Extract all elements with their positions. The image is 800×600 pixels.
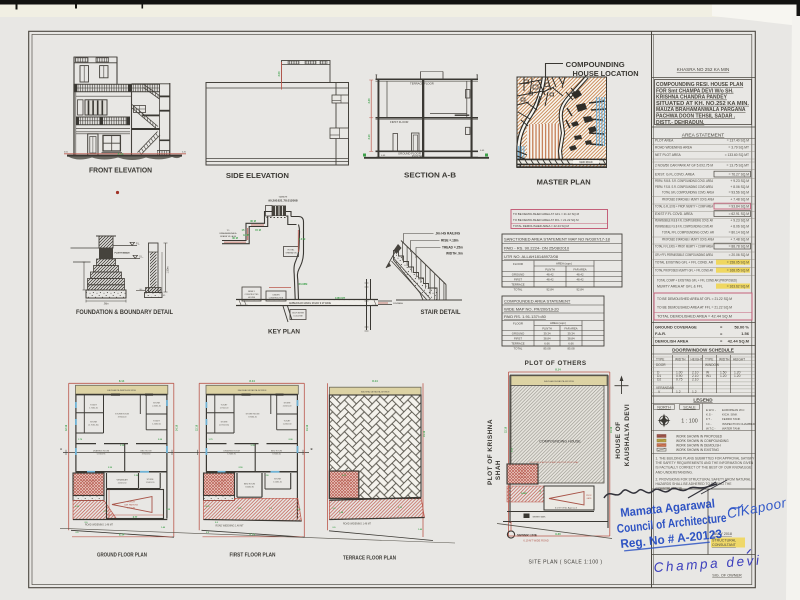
svg-text:3.30: 3.30 bbox=[367, 98, 371, 104]
svg-text:1.75X2.20: 1.75X2.20 bbox=[220, 407, 229, 409]
svg-text:ROAD WIDENING 1.48 MT: ROAD WIDENING 1.48 MT bbox=[215, 524, 244, 527]
svg-text:KAUSHALYA RASTA 4M WIDE: KAUSHALYA RASTA 4M WIDE bbox=[361, 390, 390, 393]
svg-text:WIDTH: WIDTH bbox=[719, 358, 730, 362]
svg-text:FOUNDATION & BOUNDARY DETAIL: FOUNDATION & BOUNDARY DETAIL bbox=[76, 309, 173, 316]
svg-text:1.20X2.00: 1.20X2.00 bbox=[283, 423, 292, 425]
svg-text:1.50X1.20: 1.50X1.20 bbox=[273, 482, 282, 484]
svg-text:THE SAFETY REQUIREMENTS AND TH: THE SAFETY REQUIREMENTS AND THE INFORMAT… bbox=[656, 461, 754, 465]
svg-text:WIDTH: WIDTH bbox=[675, 358, 686, 362]
svg-text:1.20X2.00: 1.20X2.00 bbox=[152, 423, 161, 425]
svg-text:B: B bbox=[311, 447, 313, 451]
svg-text:RISPANA: RISPANA bbox=[393, 302, 403, 305]
svg-text:STORE: STORE bbox=[284, 403, 292, 405]
svg-text:WORK SHOWN IN PROPOSED: WORK SHOWN IN PROPOSED bbox=[676, 434, 723, 438]
svg-text:TOTAL EXISTING GFL + FFL CO: TOTAL EXISTING GFL + FFL COND. AR bbox=[655, 261, 714, 265]
svg-text:1.20: 1.20 bbox=[734, 374, 741, 378]
svg-text:39.34: 39.34 bbox=[568, 332, 575, 336]
svg-text:EXIST F.FL COVD. AREA: EXIST F.FL COVD. AREA bbox=[655, 212, 694, 216]
svg-text:= 137.40 SQ.M: = 137.40 SQ.M bbox=[727, 139, 750, 143]
svg-text:3.95X3.60: 3.95X3.60 bbox=[272, 453, 281, 455]
svg-text:FIRST: FIRST bbox=[514, 337, 522, 341]
svg-text:60.96M: 60.96M bbox=[299, 282, 308, 286]
svg-text:.9m HG RAILING: .9m HG RAILING bbox=[435, 232, 461, 236]
svg-text:G.L.: G.L. bbox=[139, 256, 144, 259]
svg-text:6.0 MT Wide Approach: 6.0 MT Wide Approach bbox=[555, 507, 578, 510]
svg-text:2. PROVISIONS FOR STRUCTURAL S: 2. PROVISIONS FOR STRUCTURAL SAFETY FROM… bbox=[656, 478, 752, 482]
svg-text:3.60X2.80: 3.60X2.80 bbox=[245, 487, 254, 489]
svg-text:PERM. F.S.B. S.R. COMPOUNDING: PERM. F.S.B. S.R. COMPOUNDING COVD AREA bbox=[655, 185, 714, 189]
svg-text:8.14: 8.14 bbox=[249, 533, 255, 537]
svg-text:30 M: 30 M bbox=[250, 219, 256, 223]
svg-text:= 3.79 SQ.MT: = 3.79 SQ.MT bbox=[728, 146, 749, 150]
svg-text:SECTION A-B: SECTION A-B bbox=[404, 171, 456, 180]
svg-text:W.T.C -: W.T.C - bbox=[706, 426, 716, 430]
svg-text:HOTEL: HOTEL bbox=[288, 250, 296, 252]
svg-text:SEWER LINE: SEWER LINE bbox=[517, 534, 537, 538]
svg-text:FOR Smt CHAMPA DEVI W/o SH.: FOR Smt CHAMPA DEVI W/o SH. bbox=[656, 88, 734, 94]
svg-text:FIRST: FIRST bbox=[514, 278, 522, 282]
svg-text:GFL+FFL PERMISSIBLE COMPOUNDIN: GFL+FFL PERMISSIBLE COMPOUNDING AREA bbox=[655, 253, 714, 257]
svg-text:9.0M: 9.0M bbox=[243, 233, 249, 237]
svg-text:WINDOW: WINDOW bbox=[705, 363, 719, 367]
svg-text:P.L.: P.L. bbox=[136, 243, 140, 246]
svg-text:SIDE ELEVATION: SIDE ELEVATION bbox=[226, 171, 289, 180]
svg-text:+ 7.48 SQ.M: + 7.48 SQ.M bbox=[730, 198, 749, 202]
svg-text:2.45X1.50: 2.45X1.50 bbox=[118, 483, 127, 485]
svg-text:COMPOUNDING RESI. HOUSE PLAN: COMPOUNDING RESI. HOUSE PLAN bbox=[656, 82, 744, 88]
svg-text:8.14: 8.14 bbox=[372, 379, 378, 383]
svg-text:PERM. R.B.B. S.R. COMPOUNDING: PERM. R.B.B. S.R. COMPOUNDING COVD. AREA bbox=[655, 179, 714, 183]
svg-text:85.08: 85.08 bbox=[568, 347, 575, 351]
svg-text:= 133.60 SQ.MT: = 133.60 SQ.MT bbox=[725, 153, 749, 157]
svg-text:12.19: 12.19 bbox=[65, 424, 68, 431]
svg-text:A: A bbox=[60, 447, 62, 451]
svg-text:BRAHAMANWALA: BRAHAMANWALA bbox=[220, 232, 238, 235]
svg-text:3.00: 3.00 bbox=[277, 71, 281, 77]
svg-text:39.34: 39.34 bbox=[544, 332, 551, 336]
svg-text:+ 8.06 SQ.M: + 8.06 SQ.M bbox=[730, 225, 749, 229]
svg-text:PERMISSIBLE R.B.B F.FL COMPOUN: PERMISSIBLE R.B.B F.FL COMPOUNDING COVD.… bbox=[655, 219, 713, 223]
svg-text:TO BE DEMOLISHED AREA AT FFL: TO BE DEMOLISHED AREA AT FFL = 21.22 SQ.… bbox=[657, 306, 732, 310]
svg-text:12.19: 12.19 bbox=[505, 426, 508, 433]
svg-text:UNDER: UNDER bbox=[272, 295, 280, 297]
svg-text:SHAH: SHAH bbox=[495, 460, 502, 480]
svg-text:PAID - RS. 90.2224- ON 25/: PAID - RS. 90.2224- ON 25/08/2010 bbox=[504, 246, 570, 251]
svg-text:STORE: STORE bbox=[274, 479, 282, 481]
svg-text:EXIST. G.FL.COVD. AREA: EXIST. G.FL.COVD. AREA bbox=[655, 173, 695, 177]
svg-text:AND UNDERSTANDING.: AND UNDERSTANDING. bbox=[656, 470, 693, 474]
svg-text:PROPOSED STAIRCASE / MUMTY CO: PROPOSED STAIRCASE / MUMTY COVD. AREA bbox=[662, 198, 715, 202]
svg-text:SITUATED AT KH. NO.252 KA MIN: SITUATED AT KH. NO.252 KA MIN. bbox=[656, 101, 750, 107]
svg-text:PLINTH BEAM: PLINTH BEAM bbox=[115, 252, 130, 255]
svg-text:FLOOR: FLOOR bbox=[513, 322, 523, 326]
svg-text:PLOT OF KRISHNA: PLOT OF KRISHNA bbox=[487, 419, 494, 485]
svg-text:TOILET: TOILET bbox=[284, 421, 292, 423]
svg-text:F.T -: F.T - bbox=[706, 417, 712, 421]
svg-text:KIT+W.C+BATH: KIT+W.C+BATH bbox=[81, 480, 96, 483]
svg-text:LEGEND: LEGEND bbox=[693, 398, 713, 403]
svg-text:AMBEDKAR MARG ROAD 9 M WIDE: AMBEDKAR MARG ROAD 9 M WIDE bbox=[289, 302, 332, 305]
svg-text:1.75X2.20: 1.75X2.20 bbox=[89, 407, 98, 409]
svg-text:ROAD WIDENING 1.48 MT: ROAD WIDENING 1.48 MT bbox=[343, 523, 372, 526]
svg-text:TOTAL COMP + EXISTING GFL + F: TOTAL COMP + EXISTING GFL + FFL COND AR … bbox=[657, 279, 737, 283]
svg-text:KICH. SINK: KICH. SINK bbox=[722, 413, 737, 417]
svg-text:COLLEGE: COLLEGE bbox=[293, 316, 303, 318]
svg-text:BED ROOM: BED ROOM bbox=[271, 451, 282, 453]
svg-text:AREA STATEMENT: AREA STATEMENT bbox=[682, 133, 725, 139]
svg-text:1.90X2.20: 1.90X2.20 bbox=[84, 484, 94, 486]
svg-text:IS FACTUALLY CORRECT OT THE B: IS FACTUALLY CORRECT OT THE BEST OF OUR … bbox=[656, 466, 753, 470]
svg-text:DISTT.- DEHRADUN.: DISTT.- DEHRADUN. bbox=[656, 120, 705, 126]
svg-text:TYPE: TYPE bbox=[656, 358, 664, 362]
svg-text:8.14: 8.14 bbox=[249, 379, 255, 383]
svg-text:SHERATON: SHERATON bbox=[286, 252, 297, 255]
svg-text:WORK SHOWN IN EXISTING: WORK SHOWN IN EXISTING bbox=[676, 448, 719, 452]
svg-text:3.10: 3.10 bbox=[367, 134, 371, 140]
svg-text:TERRACE: TERRACE bbox=[511, 342, 524, 346]
svg-text:GATE: GATE bbox=[586, 497, 592, 500]
svg-text:TERRACE: TERRACE bbox=[511, 283, 524, 287]
svg-text:6.66: 6.66 bbox=[544, 342, 550, 346]
svg-text:TREAD =.25m: TREAD =.25m bbox=[442, 246, 463, 250]
svg-text:PLOT OF OTHERS: PLOT OF OTHERS bbox=[525, 360, 587, 367]
svg-text:EUROPEAN W.C: EUROPEAN W.C bbox=[722, 408, 745, 412]
svg-text:38.84: 38.84 bbox=[568, 337, 575, 341]
svg-text:FIRST FLOOR PLAN: FIRST FLOOR PLAN bbox=[230, 553, 276, 559]
svg-text:MUMTY/STAIR: MUMTY/STAIR bbox=[337, 480, 352, 483]
svg-text:KAUSHALYA RASTA 4M WIDE: KAUSHALYA RASTA 4M WIDE bbox=[107, 389, 136, 392]
svg-text:PROPOSED STAIRCASE / MUMTY CO: PROPOSED STAIRCASE / MUMTY COVD. AREA bbox=[662, 238, 715, 242]
svg-text:GROUND: GROUND bbox=[512, 273, 524, 277]
svg-text:1.90X2.20: 1.90X2.20 bbox=[214, 484, 224, 486]
svg-text:TERRACE FLOOR PLAN: TERRACE FLOOR PLAN bbox=[343, 556, 396, 562]
svg-text:UTR NO. ALLAH18148972/08: UTR NO. ALLAH18148972/08 bbox=[504, 254, 559, 259]
svg-text:1.2: 1.2 bbox=[692, 390, 697, 394]
svg-text:48.42: 48.42 bbox=[547, 273, 554, 277]
svg-text:COMPOUNDING: COMPOUNDING bbox=[566, 62, 626, 69]
svg-text:TOTAL: TOTAL bbox=[514, 347, 523, 351]
svg-text:4.8 SQM: 4.8 SQM bbox=[127, 508, 135, 510]
svg-text:COMPOUNDING HOUSE: COMPOUNDING HOUSE bbox=[539, 440, 581, 444]
svg-text:VERANDAH: VERANDAH bbox=[116, 479, 128, 482]
svg-text:+BATH: +BATH bbox=[519, 472, 526, 475]
svg-text:PLOT AREA: PLOT AREA bbox=[655, 139, 674, 143]
svg-text:TOTAL DEMOLISHED AREA =: TOTAL DEMOLISHED AREA = 42.44 SQ.M bbox=[657, 315, 732, 319]
svg-text:HOUSE OF: HOUSE OF bbox=[615, 421, 622, 458]
svg-text:FAR AREA: FAR AREA bbox=[564, 327, 577, 331]
svg-text:48.42: 48.42 bbox=[577, 278, 584, 282]
svg-text:1.20: 1.20 bbox=[720, 374, 727, 378]
svg-text:SIG. OF OWNER: SIG. OF OWNER bbox=[712, 574, 742, 578]
svg-text:+ 9.23 SQ.M: + 9.23 SQ.M bbox=[730, 219, 749, 223]
svg-text:9.0 M: 9.0 M bbox=[299, 237, 306, 241]
svg-text:MASTER PLAN: MASTER PLAN bbox=[537, 178, 591, 187]
svg-text:TOTAL DEMOLISHED AREA =: TOTAL DEMOLISHED AREA = 42.44 SQ.M bbox=[513, 224, 570, 228]
svg-text:= 163.62 SQ.M: = 163.62 SQ.M bbox=[727, 285, 750, 289]
svg-text:STORE: STORE bbox=[221, 422, 229, 424]
svg-text:FERRO TANK: FERRO TANK bbox=[722, 417, 740, 421]
svg-text:TYPE: TYPE bbox=[705, 358, 713, 362]
svg-text:TO BE DEMOLISHED AREA AT GFL: TO BE DEMOLISHED AREA AT GFL = 21.22 SQ.… bbox=[657, 297, 732, 301]
svg-text:DOOR/WINDOW SCHEDULE: DOOR/WINDOW SCHEDULE bbox=[672, 348, 734, 353]
svg-text:PAID RS. 1.91.137/=80: PAID RS. 1.91.137/=80 bbox=[504, 314, 547, 319]
svg-text:KHASRA NO 252 KA MIN: KHASRA NO 252 KA MIN bbox=[677, 67, 730, 72]
svg-text:HOUSE LOCATION: HOUSE LOCATION bbox=[573, 71, 639, 78]
svg-text:WIDE MAP NO. PR/200/19-20: WIDE MAP NO. PR/200/19-20 bbox=[504, 307, 560, 312]
svg-text:HEIGHT: HEIGHT bbox=[691, 358, 703, 362]
svg-text:WIDTH .9m: WIDTH .9m bbox=[446, 252, 463, 256]
svg-text:TOILET: TOILET bbox=[153, 421, 161, 423]
svg-text:1.90X2.20: 1.90X2.20 bbox=[517, 477, 527, 479]
svg-text:= 93.56 SQ.M: = 93.56 SQ.M bbox=[729, 191, 750, 195]
svg-text:TO BE DEMOLISHED AREA AT FFL: TO BE DEMOLISHED AREA AT FFL = 21.22 SQ.… bbox=[513, 218, 579, 222]
svg-text:+ 8.06 SQ.M: + 8.06 SQ.M bbox=[730, 185, 749, 189]
svg-text:FAR AREA: FAR AREA bbox=[573, 267, 586, 271]
svg-text:HOUSE: HOUSE bbox=[248, 297, 256, 299]
svg-text:BED ROOM: BED ROOM bbox=[244, 484, 255, 486]
svg-text:INSPECTION CHAMBER: INSPECTION CHAMBER bbox=[722, 422, 755, 426]
svg-text:48.42: 48.42 bbox=[577, 273, 584, 277]
svg-text:FLOOR: FLOOR bbox=[513, 262, 523, 266]
svg-text:2 NOS/50 CAR PARK AT GF 5.0X2: 2 NOS/50 CAR PARK AT GF 5.0X2.75 M bbox=[655, 164, 713, 168]
svg-text:0.75: 0.75 bbox=[676, 378, 683, 382]
svg-text:KEY PLAN: KEY PLAN bbox=[268, 329, 300, 336]
svg-text:NET PLOT AREA: NET PLOT AREA bbox=[655, 153, 682, 157]
svg-text:92.84: 92.84 bbox=[547, 288, 554, 292]
svg-text:1.50m: 1.50m bbox=[167, 267, 170, 274]
svg-text:TERRACE FLOOR: TERRACE FLOOR bbox=[410, 82, 434, 86]
svg-text:(1.75X2.45): (1.75X2.45) bbox=[89, 424, 99, 426]
svg-text:6.19 MT WIDE ROAD: 6.19 MT WIDE ROAD bbox=[523, 539, 548, 543]
svg-text:DRAWING ROOM: DRAWING ROOM bbox=[223, 450, 240, 453]
svg-text:14.19: 14.19 bbox=[176, 424, 179, 431]
svg-text:D2: D2 bbox=[657, 378, 661, 382]
svg-text:GROUND FLOOR PLAN: GROUND FLOOR PLAN bbox=[97, 553, 147, 559]
svg-text:3.35X2.20: 3.35X2.20 bbox=[339, 484, 349, 486]
svg-text:SANCTIONED AREA STATEMENT MAP: SANCTIONED AREA STATEMENT MAP NO N/0307/… bbox=[504, 237, 611, 242]
svg-text:ROAD WIDENING 1.48 MT: ROAD WIDENING 1.48 MT bbox=[85, 523, 114, 526]
svg-text:SITE PLAN ( SCALE 1:100 ): SITE PLAN ( SCALE 1:100 ) bbox=[529, 560, 603, 566]
svg-text:5.70X3.95: 5.70X3.95 bbox=[97, 453, 106, 455]
svg-text:1.50X1.20: 1.50X1.20 bbox=[146, 482, 155, 484]
svg-text:.90m: .90m bbox=[103, 303, 108, 306]
svg-text:8.14: 8.14 bbox=[555, 368, 561, 372]
svg-text:MAUZA BRAHAMANWALA PARGANA: MAUZA BRAHAMANWALA PARGANA bbox=[656, 107, 746, 113]
svg-text:K.S -: K.S - bbox=[706, 413, 712, 417]
svg-text:2.10: 2.10 bbox=[692, 378, 699, 382]
svg-text:= 20.06 SQ.M: = 20.06 SQ.M bbox=[729, 253, 750, 257]
svg-text:WORK SHOWN IN DEMOLISH: WORK SHOWN IN DEMOLISH bbox=[676, 443, 721, 447]
svg-text:DRAWING ROOM: DRAWING ROOM bbox=[93, 450, 110, 453]
svg-text:ROAD WIDENING AREA: ROAD WIDENING AREA bbox=[655, 146, 693, 150]
svg-text:15 M: 15 M bbox=[255, 228, 261, 232]
svg-text:= 76.27 SQ.M: = 76.27 SQ.M bbox=[729, 173, 750, 177]
svg-text:STORE ROOM: STORE ROOM bbox=[115, 414, 129, 416]
svg-text:MUMTY AREA AT GFL & FFL: MUMTY AREA AT GFL & FFL bbox=[657, 285, 703, 289]
svg-text:TOTAL F.FL.EXIS + PROP. MUMTY: TOTAL F.FL.EXIS + PROP. MUMTY + COMP ARE… bbox=[655, 245, 714, 249]
svg-text:TOTAL: TOTAL bbox=[514, 288, 523, 292]
svg-text:BED ROOM: BED ROOM bbox=[141, 451, 152, 453]
svg-text:COMPOUNDED AREA STATEMENT: COMPOUNDED AREA STATEMENT bbox=[504, 299, 571, 304]
svg-text:KIT+W.C: KIT+W.C bbox=[518, 470, 527, 472]
svg-text:3.95X4.20: 3.95X4.20 bbox=[118, 416, 127, 418]
svg-text:DOOR: DOOR bbox=[656, 363, 666, 367]
svg-text:38.84: 38.84 bbox=[544, 337, 551, 341]
svg-text:14.19: 14.19 bbox=[423, 430, 426, 437]
svg-text:AREA (sqm): AREA (sqm) bbox=[556, 262, 572, 266]
svg-text:8.14: 8.14 bbox=[119, 533, 125, 537]
svg-text:STAIR DETAIL: STAIR DETAIL bbox=[421, 309, 461, 316]
svg-text:TOTAL FFL COMPOUNDING COVD. AR: TOTAL FFL COMPOUNDING COVD. AR bbox=[662, 231, 715, 235]
svg-text:CAR PARKING: CAR PARKING bbox=[124, 504, 139, 507]
svg-text:3.95X4.20: 3.95X4.20 bbox=[248, 416, 257, 418]
svg-text:42.44 SQ.M: 42.44 SQ.M bbox=[728, 339, 750, 344]
svg-text:KAUSHALYA DEVI: KAUSHALYA DEVI bbox=[624, 404, 631, 466]
svg-text:STORE: STORE bbox=[90, 422, 98, 424]
svg-text:PORCH: PORCH bbox=[127, 502, 135, 504]
svg-text:TOTAL GFL COMPOUNDING COVD. AR: TOTAL GFL COMPOUNDING COVD. AREA bbox=[662, 191, 715, 195]
svg-text:TOTAL G.FL.EXIS + PROP. MUMTY: TOTAL G.FL.EXIS + PROP. MUMTY + COMP ARE… bbox=[655, 205, 714, 209]
svg-text:= 158.05 SQ.M: = 158.05 SQ.M bbox=[727, 261, 750, 265]
svg-text:CONSTRUCTED: CONSTRUCTED bbox=[245, 294, 259, 296]
svg-text:STORE ROOM: STORE ROOM bbox=[246, 414, 260, 416]
svg-text:KAUSHALYA RASTA 4M WIDE: KAUSHALYA RASTA 4M WIDE bbox=[238, 389, 267, 392]
svg-text:14.19: 14.19 bbox=[610, 426, 613, 433]
svg-text:HAZARDS SHALL BE ADHERED TO DU: HAZARDS SHALL BE ADHERED TO DURING THE bbox=[656, 482, 733, 486]
svg-text:1.2: 1.2 bbox=[676, 390, 681, 394]
svg-text:KRISHNA CHANDRA PANDEY: KRISHNA CHANDRA PANDEY bbox=[656, 95, 728, 101]
svg-text:90.291621.78.012008: 90.291621.78.012008 bbox=[268, 199, 298, 203]
svg-text:58.00 %: 58.00 % bbox=[734, 325, 749, 330]
svg-text:= 13.75 SQ.MT: = 13.75 SQ.MT bbox=[727, 164, 749, 168]
svg-text:WATER TANK: WATER TANK bbox=[722, 426, 740, 430]
svg-text:STORE: STORE bbox=[153, 403, 161, 405]
svg-text:6.77: 6.77 bbox=[133, 517, 138, 519]
svg-text:AREA (sqm): AREA (sqm) bbox=[550, 321, 566, 325]
svg-text:= 62.91 SQ.M: = 62.91 SQ.M bbox=[729, 212, 750, 216]
svg-text:GRAME VILLAGE: GRAME VILLAGE bbox=[220, 235, 237, 238]
svg-text:+ 9.23 SQ.M: + 9.23 SQ.M bbox=[730, 179, 749, 183]
svg-text:FRONT ELEVATION: FRONT ELEVATION bbox=[89, 166, 152, 175]
svg-text:85.08: 85.08 bbox=[544, 347, 551, 351]
svg-text:KAUSHALYA RASTA 4M WIDE: KAUSHALYA RASTA 4M WIDE bbox=[544, 380, 575, 383]
svg-text:F.A.R.: F.A.R. bbox=[655, 331, 666, 336]
svg-text:PACHWA DOON TEHSIL SADAR .: PACHWA DOON TEHSIL SADAR . bbox=[656, 114, 736, 120]
svg-text:CONSULTANT: CONSULTANT bbox=[712, 543, 737, 547]
svg-text:HEIGHT: HEIGHT bbox=[733, 358, 745, 362]
svg-text:14.19: 14.19 bbox=[306, 424, 309, 431]
svg-text:PLINTH: PLINTH bbox=[545, 267, 555, 271]
svg-text:+ 7.48 SQ.M: + 7.48 SQ.M bbox=[730, 238, 749, 242]
svg-text:SEWER TANK: SEWER TANK bbox=[532, 516, 546, 519]
svg-text:1.56: 1.56 bbox=[741, 331, 750, 336]
svg-text:GROUND COVERAGE: GROUND COVERAGE bbox=[655, 325, 697, 330]
svg-text:6.66: 6.66 bbox=[568, 342, 574, 346]
svg-text:TO: TO bbox=[227, 230, 230, 232]
svg-text:KIT+W.C+BATH: KIT+W.C+BATH bbox=[212, 480, 227, 483]
svg-text:FIRST FLOOR: FIRST FLOOR bbox=[390, 120, 408, 124]
svg-text:= 80.14 SQ.M: = 80.14 SQ.M bbox=[729, 231, 750, 235]
svg-text:(1.75X2.45): (1.75X2.45) bbox=[219, 424, 229, 426]
svg-text:2.45X1.20: 2.45X1.20 bbox=[152, 405, 161, 407]
svg-text:RISE =.18m: RISE =.18m bbox=[441, 239, 459, 243]
svg-text:= 88.78 SQ.M: = 88.78 SQ.M bbox=[729, 245, 750, 249]
svg-text:CONSTRUCTION: CONSTRUCTION bbox=[269, 298, 284, 300]
svg-text:PERMISSIBLE F.S.B F.FL COMPOUN: PERMISSIBLE F.S.B F.FL COMPOUNDING COVD … bbox=[655, 225, 713, 229]
svg-text:STORE: STORE bbox=[147, 479, 155, 481]
svg-text:W1: W1 bbox=[706, 374, 711, 378]
svg-text:12.19: 12.19 bbox=[196, 424, 199, 431]
svg-text:PLINTH: PLINTH bbox=[542, 327, 552, 331]
svg-text:SCALE: SCALE bbox=[683, 406, 696, 410]
svg-text:5.70X3.95: 5.70X3.95 bbox=[227, 453, 236, 455]
svg-text:9.30: 9.30 bbox=[555, 532, 561, 536]
svg-text:NORTH: NORTH bbox=[657, 406, 671, 410]
svg-text:WORK SHOWN IN COMPOUNDING: WORK SHOWN IN COMPOUNDING bbox=[676, 439, 729, 443]
svg-text:GROUND: GROUND bbox=[512, 332, 524, 336]
svg-text:2.45X1.20: 2.45X1.20 bbox=[283, 405, 292, 407]
svg-text:TOILET: TOILET bbox=[90, 405, 98, 407]
svg-text:PROP.: PROP. bbox=[586, 495, 592, 497]
svg-text:1 : 100: 1 : 100 bbox=[681, 419, 698, 425]
svg-text:DEMOLISH AREA: DEMOLISH AREA bbox=[655, 339, 689, 344]
svg-text:TOTAL PROPOSED MUMTY GFL + FFL: TOTAL PROPOSED MUMTY GFL + FFL COND AR bbox=[655, 269, 713, 273]
svg-text:RAMP: RAMP bbox=[521, 492, 528, 495]
svg-text:8.14: 8.14 bbox=[118, 152, 124, 156]
svg-text:92.84: 92.84 bbox=[577, 288, 584, 292]
svg-text:= 93.84 SQ.M: = 93.84 SQ.M bbox=[729, 205, 750, 209]
svg-text:48.42: 48.42 bbox=[547, 278, 554, 282]
svg-text:GOVT.INTER: GOVT.INTER bbox=[292, 313, 305, 315]
svg-text:MAIN ROAD: MAIN ROAD bbox=[579, 161, 592, 164]
svg-text:I.C -: I.C - bbox=[706, 422, 711, 426]
svg-text:NEWLY: NEWLY bbox=[248, 291, 256, 293]
svg-text:TO BE DEMOLISHED AREA AT GFL: TO BE DEMOLISHED AREA AT GFL = 21.22 SQ.… bbox=[513, 212, 580, 216]
svg-text:1. THE BUILDING PLANS SUBMITTE: 1. THE BUILDING PLANS SUBMITTED FOR APPR… bbox=[656, 457, 756, 461]
svg-text:= 168.05 SQ.M: = 168.05 SQ.M bbox=[727, 269, 750, 273]
svg-text:3.95X3.60: 3.95X3.60 bbox=[142, 453, 151, 455]
svg-text:TOILET: TOILET bbox=[221, 405, 229, 407]
svg-text:8.14: 8.14 bbox=[119, 379, 125, 383]
svg-text:E.W.C -: E.W.C - bbox=[706, 408, 716, 412]
